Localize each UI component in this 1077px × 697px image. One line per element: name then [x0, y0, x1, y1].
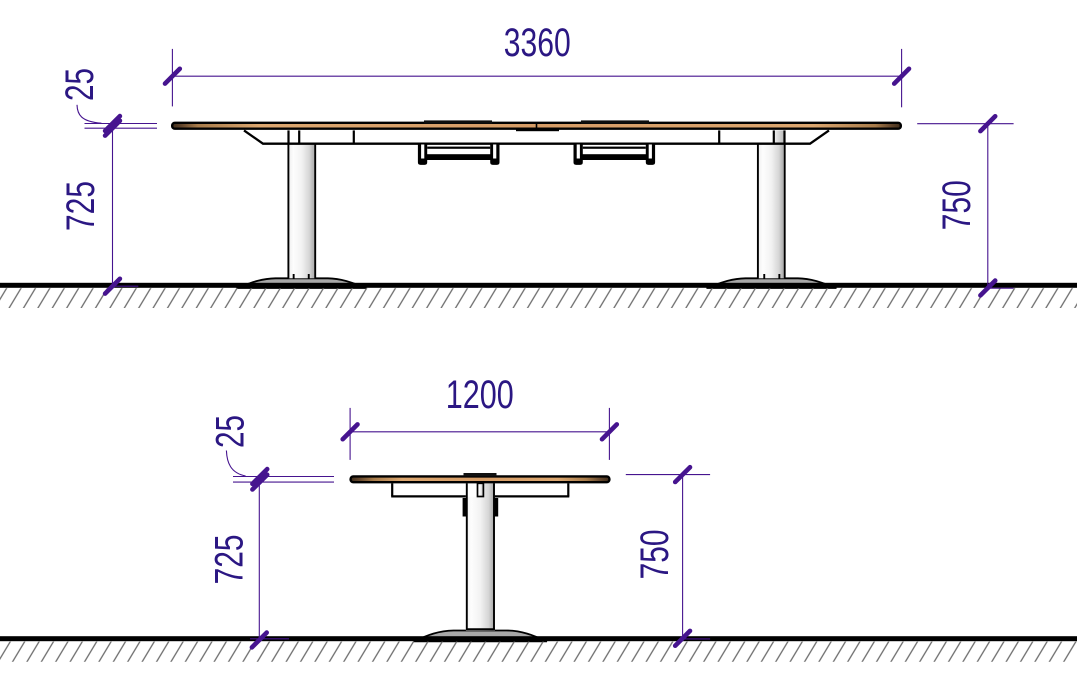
svg-text:25: 25: [58, 68, 102, 101]
svg-text:725: 725: [208, 534, 252, 584]
svg-text:750: 750: [935, 180, 979, 230]
svg-text:725: 725: [59, 181, 103, 231]
svg-text:3360: 3360: [504, 21, 571, 65]
svg-text:750: 750: [633, 529, 677, 579]
svg-text:1200: 1200: [446, 373, 514, 417]
svg-text:25: 25: [209, 415, 253, 448]
